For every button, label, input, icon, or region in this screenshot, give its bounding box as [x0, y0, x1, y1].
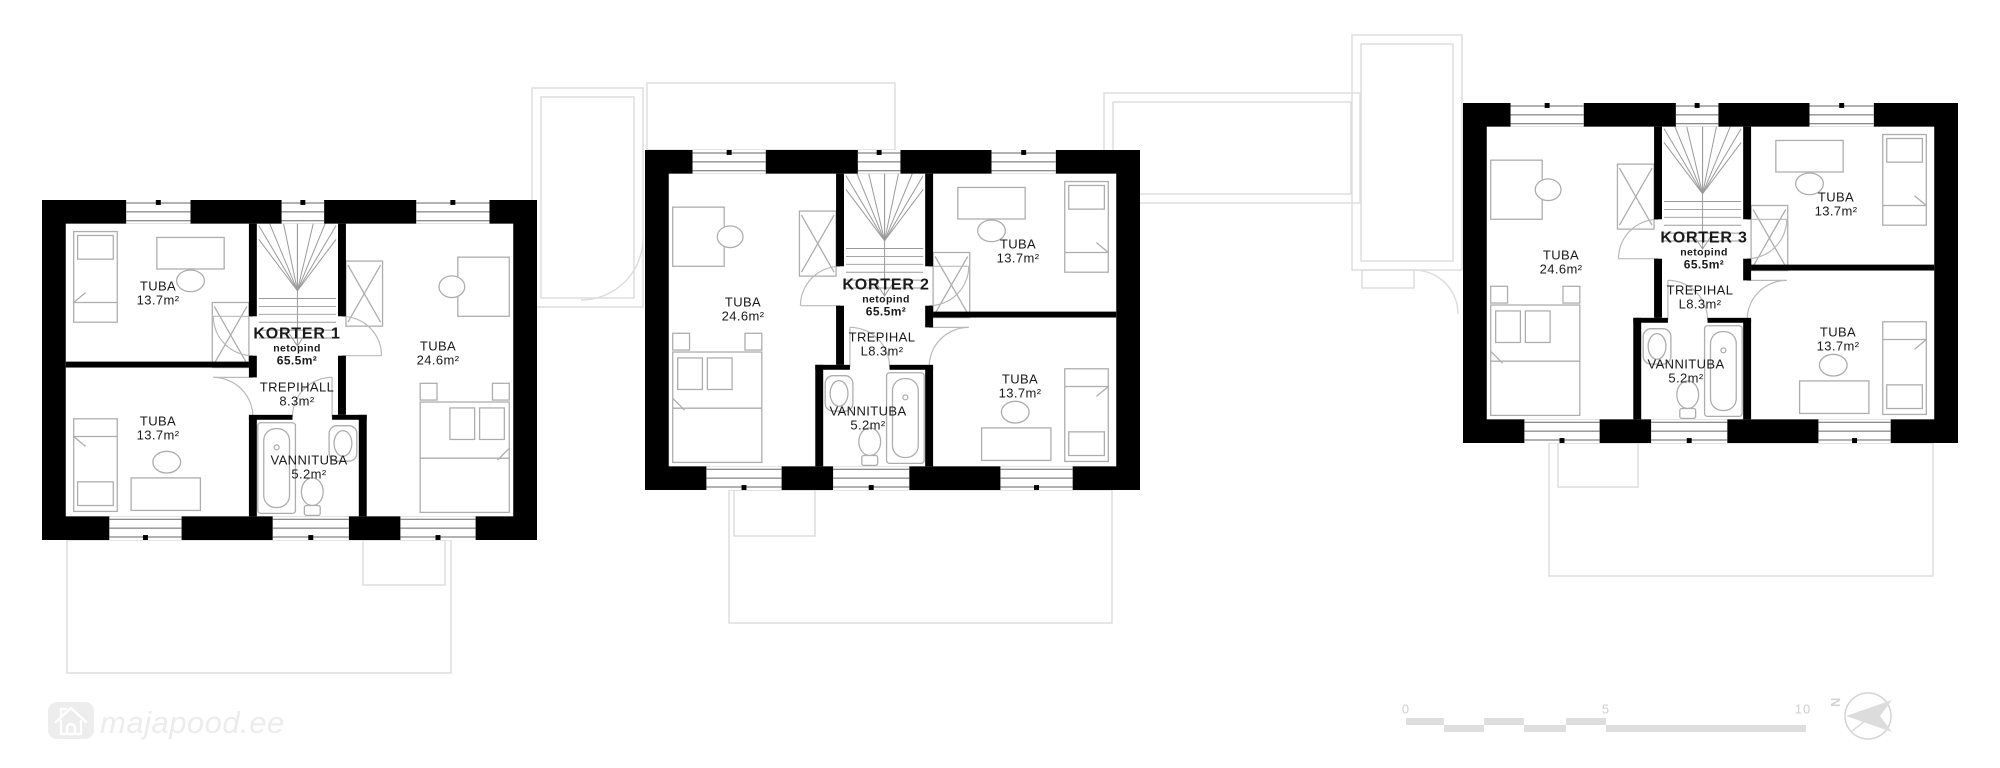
- watermark-text: majapood.ee: [100, 705, 285, 741]
- unit-1-floorplan: [42, 200, 537, 540]
- room-label-trepihall-unit-3: TREPIHALL8.3m²: [1667, 284, 1734, 311]
- unit-2-title-block: KORTER 2 netopind 65.5m²: [842, 277, 929, 318]
- room-label-tuba-bottom-unit-2: TUBA13.7m²: [999, 373, 1042, 400]
- room-label-vannituba-unit-3: VANNITUBA5.2m²: [1647, 358, 1724, 385]
- scale-label-0: 0: [1402, 702, 1410, 717]
- room-label-tuba-large-unit-3: TUBA24.6m²: [1540, 249, 1583, 276]
- unit-2-title: KORTER 2: [842, 277, 929, 294]
- room-label-trepihall-unit-2: TREPIHALL8.3m²: [849, 331, 916, 358]
- room-label-tuba-large-unit-1: TUBA24.6m²: [417, 340, 460, 367]
- room-label-vannituba-unit-1: VANNITUBA5.2m²: [270, 454, 347, 481]
- unit-3-floorplan: [1463, 103, 1958, 443]
- room-label-trepihall-unit-1: TREPIHALL8.3m²: [260, 381, 334, 408]
- room-label-tuba-top-unit-3: TUBA13.7m²: [1815, 191, 1858, 218]
- scale-label-10: 10: [1795, 702, 1811, 717]
- room-label-tuba-bottom-unit-1: TUBA13.7m²: [137, 415, 180, 442]
- unit-1-title-block: KORTER 1 netopind 65.5m²: [253, 326, 340, 367]
- unit-3-title-block: KORTER 3 netopind 65.5m²: [1660, 230, 1747, 271]
- room-label-tuba-large-unit-2: TUBA24.6m²: [722, 296, 765, 323]
- scale-label-5: 5: [1602, 702, 1610, 717]
- unit-1-title: KORTER 1: [253, 326, 340, 343]
- room-label-tuba-top-unit-1: TUBA13.7m²: [137, 280, 180, 307]
- terrace-outline: [729, 490, 1112, 623]
- terrace-outline: [1549, 443, 1933, 576]
- room-label-vannituba-unit-2: VANNITUBA5.2m²: [829, 405, 906, 432]
- room-label-tuba-top-unit-2: TUBA13.7m²: [997, 238, 1040, 265]
- room-label-tuba-bottom-unit-3: TUBA13.7m²: [1817, 326, 1860, 353]
- unit-2-floorplan: [645, 150, 1140, 490]
- terrace-outline: [67, 540, 451, 673]
- unit-3-title: KORTER 3: [1660, 230, 1747, 247]
- floorplan-canvas: TUBA13.7m² TUBA13.7m² TUBA24.6m² KORTER …: [0, 0, 2000, 768]
